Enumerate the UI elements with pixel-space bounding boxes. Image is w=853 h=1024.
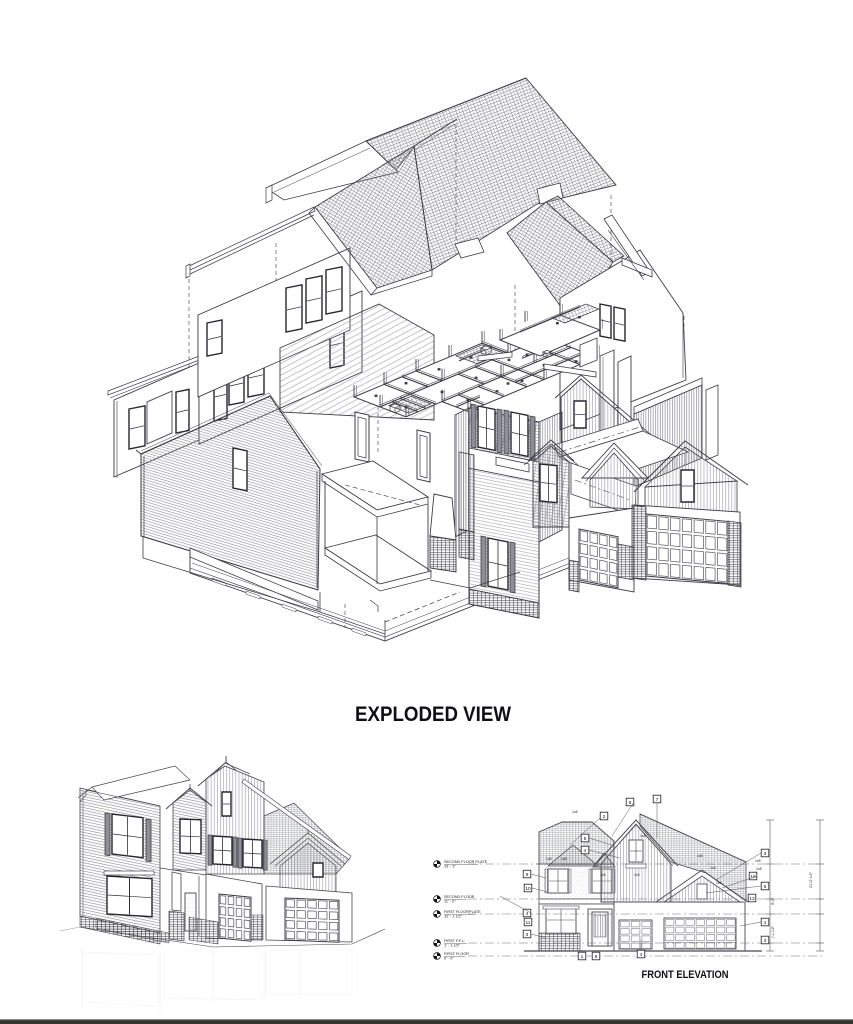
svg-text:0' - 0": 0' - 0" [444,957,454,961]
svg-text:4: 4 [526,911,529,917]
svg-text:1x8: 1x8 [572,810,578,814]
svg-text:1x8: 1x8 [697,854,703,858]
svg-text:FRONT ELEVATION: FRONT ELEVATION [642,969,729,981]
svg-text:FIRST FLOOR: FIRST FLOOR [444,952,469,956]
svg-text:7: 7 [656,797,659,803]
svg-text:10: 10 [525,886,531,892]
svg-text:2: 2 [603,814,606,820]
svg-text:4: 4 [640,952,643,958]
svg-text:SECOND FLOOR: SECOND FLOOR [444,895,475,899]
svg-text:9′-0″: 9′-0″ [771,897,775,905]
svg-text:21′-0 1/4″: 21′-0 1/4″ [809,871,813,888]
svg-text:FIRST F.F.L.: FIRST F.F.L. [444,939,465,943]
svg-text:SECOND FLOOR PLATE: SECOND FLOOR PLATE [444,860,488,864]
svg-text:1x8: 1x8 [600,873,606,877]
svg-text:1' - 1 1/2": 1' - 1 1/2" [444,944,461,948]
svg-text:3: 3 [526,932,529,938]
svg-text:3: 3 [764,851,767,857]
svg-text:1x8: 1x8 [755,859,761,863]
svg-text:1x8: 1x8 [634,873,640,877]
svg-text:5: 5 [584,836,587,842]
svg-text:(′-1 1/2″: (′-1 1/2″ [771,925,775,938]
svg-text:1: 1 [581,954,584,960]
svg-text:8: 8 [629,800,632,806]
svg-text:19' - 2": 19' - 2" [444,865,456,869]
svg-text:9: 9 [526,872,529,878]
svg-text:1x8: 1x8 [756,867,762,871]
svg-text:6: 6 [764,884,767,890]
svg-text:FIRST FLOORPLATE: FIRST FLOORPLATE [444,910,481,914]
svg-text:1x8: 1x8 [640,834,646,838]
svg-text:11: 11 [526,920,531,926]
svg-text:4: 4 [584,848,587,854]
svg-text:8: 8 [595,954,598,960]
svg-text:1x8: 1x8 [716,881,722,885]
svg-text:12: 12 [749,896,755,902]
svg-text:3: 3 [764,938,767,944]
svg-text:1x8: 1x8 [546,857,552,861]
svg-text:11' - 2": 11' - 2" [444,900,456,904]
svg-text:1x8: 1x8 [561,857,567,861]
svg-text:1x8: 1x8 [710,866,716,870]
svg-text:4: 4 [764,920,767,926]
svg-text:10' - 1 1/2": 10' - 1 1/2" [444,915,463,919]
svg-text:EXPLODED VIEW: EXPLODED VIEW [355,703,511,726]
